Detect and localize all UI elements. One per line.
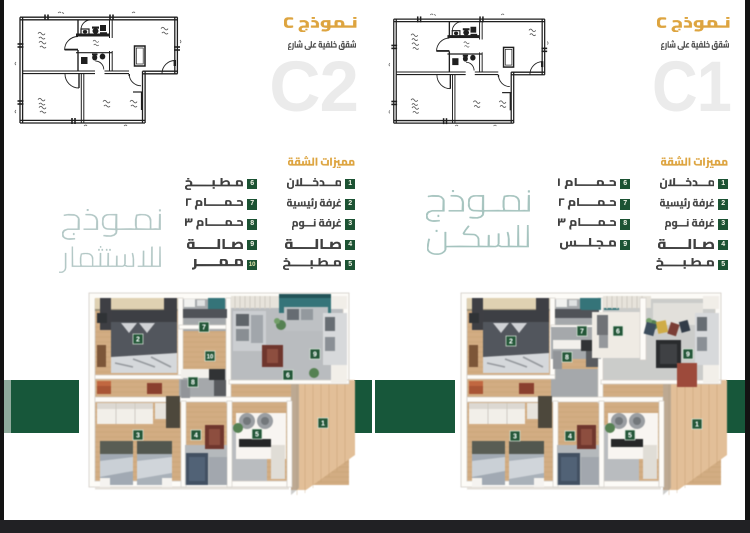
- svg-text:3: 3: [513, 434, 517, 441]
- svg-text:3: 3: [136, 433, 140, 440]
- svg-text:6: 6: [616, 329, 620, 336]
- svg-text:5: 5: [628, 433, 632, 440]
- svg-text:4: 4: [194, 433, 198, 440]
- svg-text:6: 6: [286, 373, 290, 380]
- svg-text:1: 1: [695, 422, 699, 429]
- svg-text:9: 9: [313, 352, 317, 359]
- svg-text:10: 10: [207, 355, 214, 361]
- svg-text:1: 1: [321, 421, 325, 428]
- svg-text:2: 2: [136, 337, 140, 344]
- svg-text:7: 7: [580, 329, 584, 336]
- svg-text:2: 2: [509, 339, 513, 346]
- svg-text:7: 7: [202, 325, 206, 332]
- svg-text:8: 8: [191, 380, 195, 387]
- svg-text:9: 9: [686, 352, 690, 359]
- svg-text:8: 8: [565, 355, 569, 362]
- svg-text:5: 5: [255, 432, 259, 439]
- svg-text:4: 4: [568, 434, 572, 441]
